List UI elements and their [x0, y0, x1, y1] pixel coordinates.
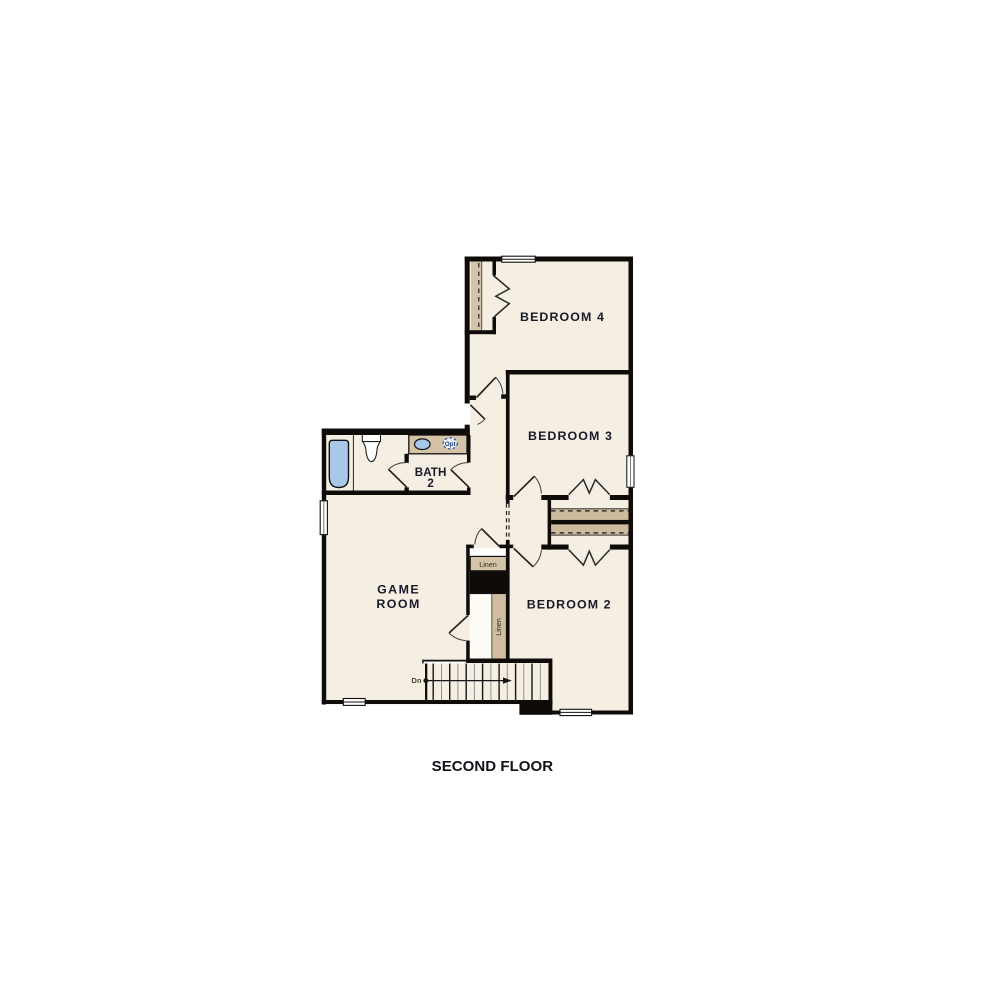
svg-text:BEDROOM 3: BEDROOM 3 [528, 429, 613, 443]
svg-text:ROOM: ROOM [376, 597, 420, 611]
svg-text:Linen: Linen [479, 560, 497, 569]
svg-text:GAME: GAME [377, 583, 420, 597]
svg-text:Linen: Linen [494, 618, 503, 636]
svg-text:BEDROOM 4: BEDROOM 4 [520, 310, 605, 324]
svg-text:Opt: Opt [445, 441, 456, 448]
svg-text:SECOND FLOOR: SECOND FLOOR [432, 758, 554, 775]
svg-text:Dn: Dn [411, 676, 421, 685]
svg-text:BEDROOM 2: BEDROOM 2 [527, 597, 612, 611]
svg-text:2: 2 [427, 477, 433, 490]
